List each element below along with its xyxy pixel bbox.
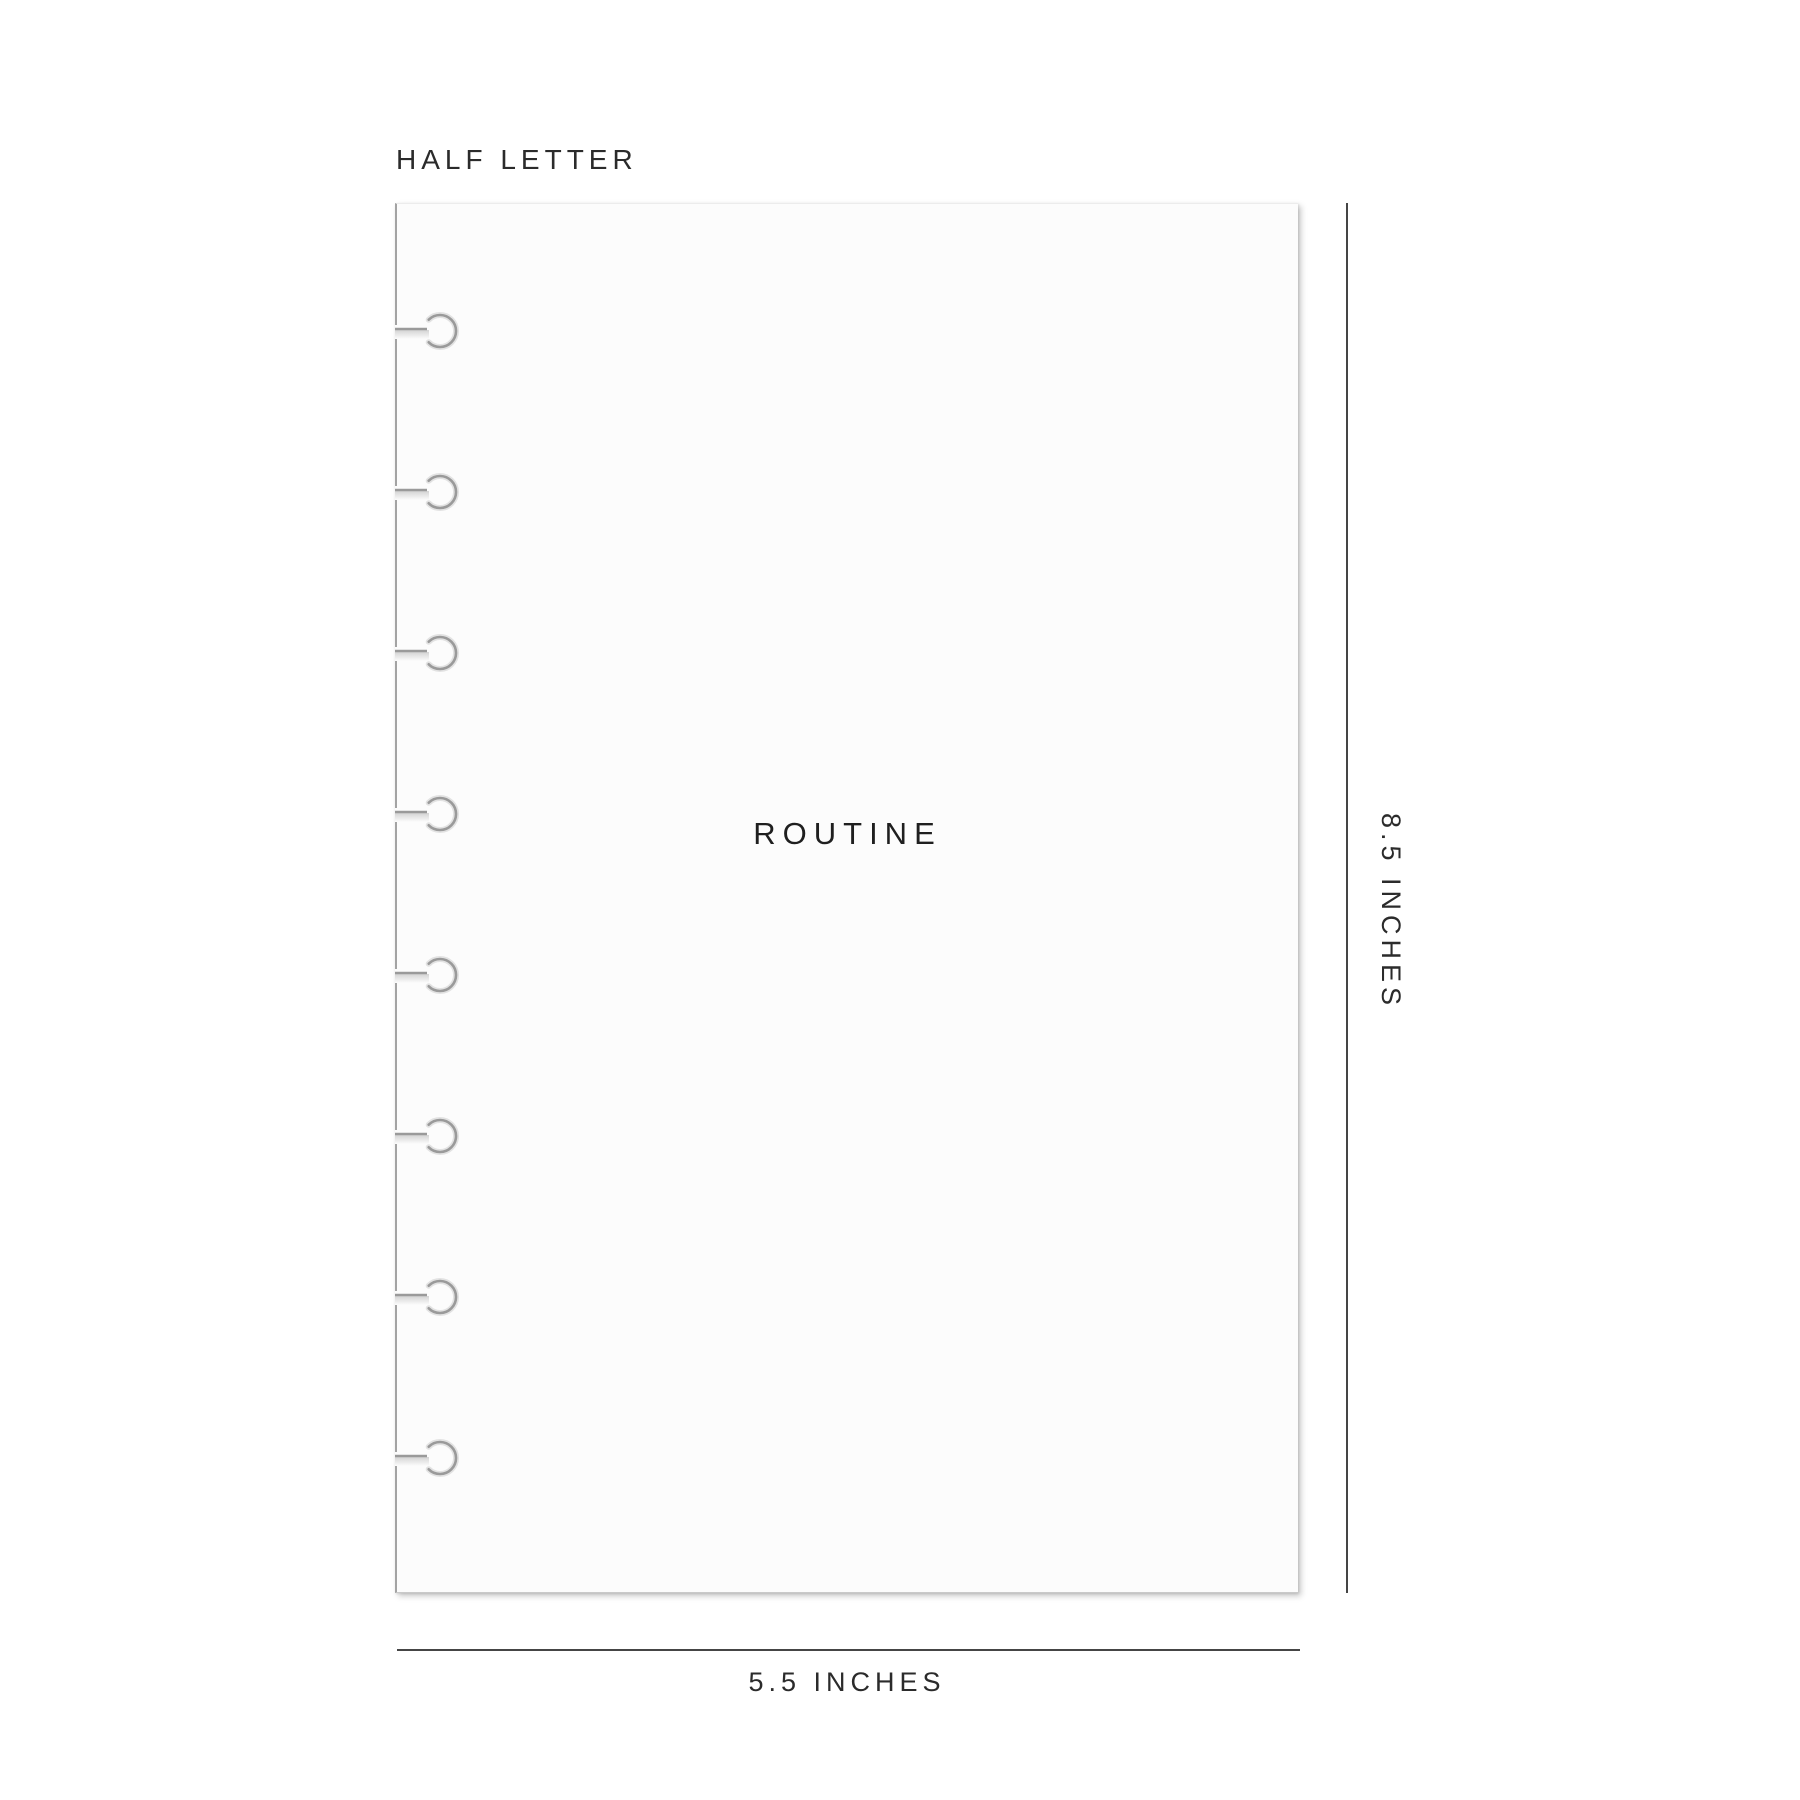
disc-punch-hole — [395, 1261, 475, 1333]
disc-punch-hole — [395, 617, 475, 689]
disc-punch-hole — [395, 939, 475, 1011]
disc-punch-holes — [397, 204, 1298, 1592]
height-dimension-label: 8.5 INCHES — [1377, 813, 1405, 983]
disc-punch-hole — [395, 295, 475, 367]
width-dimension-line — [397, 1649, 1300, 1651]
disc-punch-hole — [395, 456, 475, 528]
disc-punch-hole — [395, 1100, 475, 1172]
height-dimension-line — [1346, 203, 1348, 1593]
product-mockup: HALF LETTER ROUTINE 8.5 INCHES 5.5 INCHE… — [0, 0, 1800, 1800]
width-dimension-label: 5.5 INCHES — [697, 1667, 997, 1698]
disc-punch-hole — [395, 1422, 475, 1494]
page-title: ROUTINE — [397, 816, 1298, 852]
planner-page: ROUTINE — [395, 203, 1298, 1593]
size-label: HALF LETTER — [396, 144, 638, 176]
